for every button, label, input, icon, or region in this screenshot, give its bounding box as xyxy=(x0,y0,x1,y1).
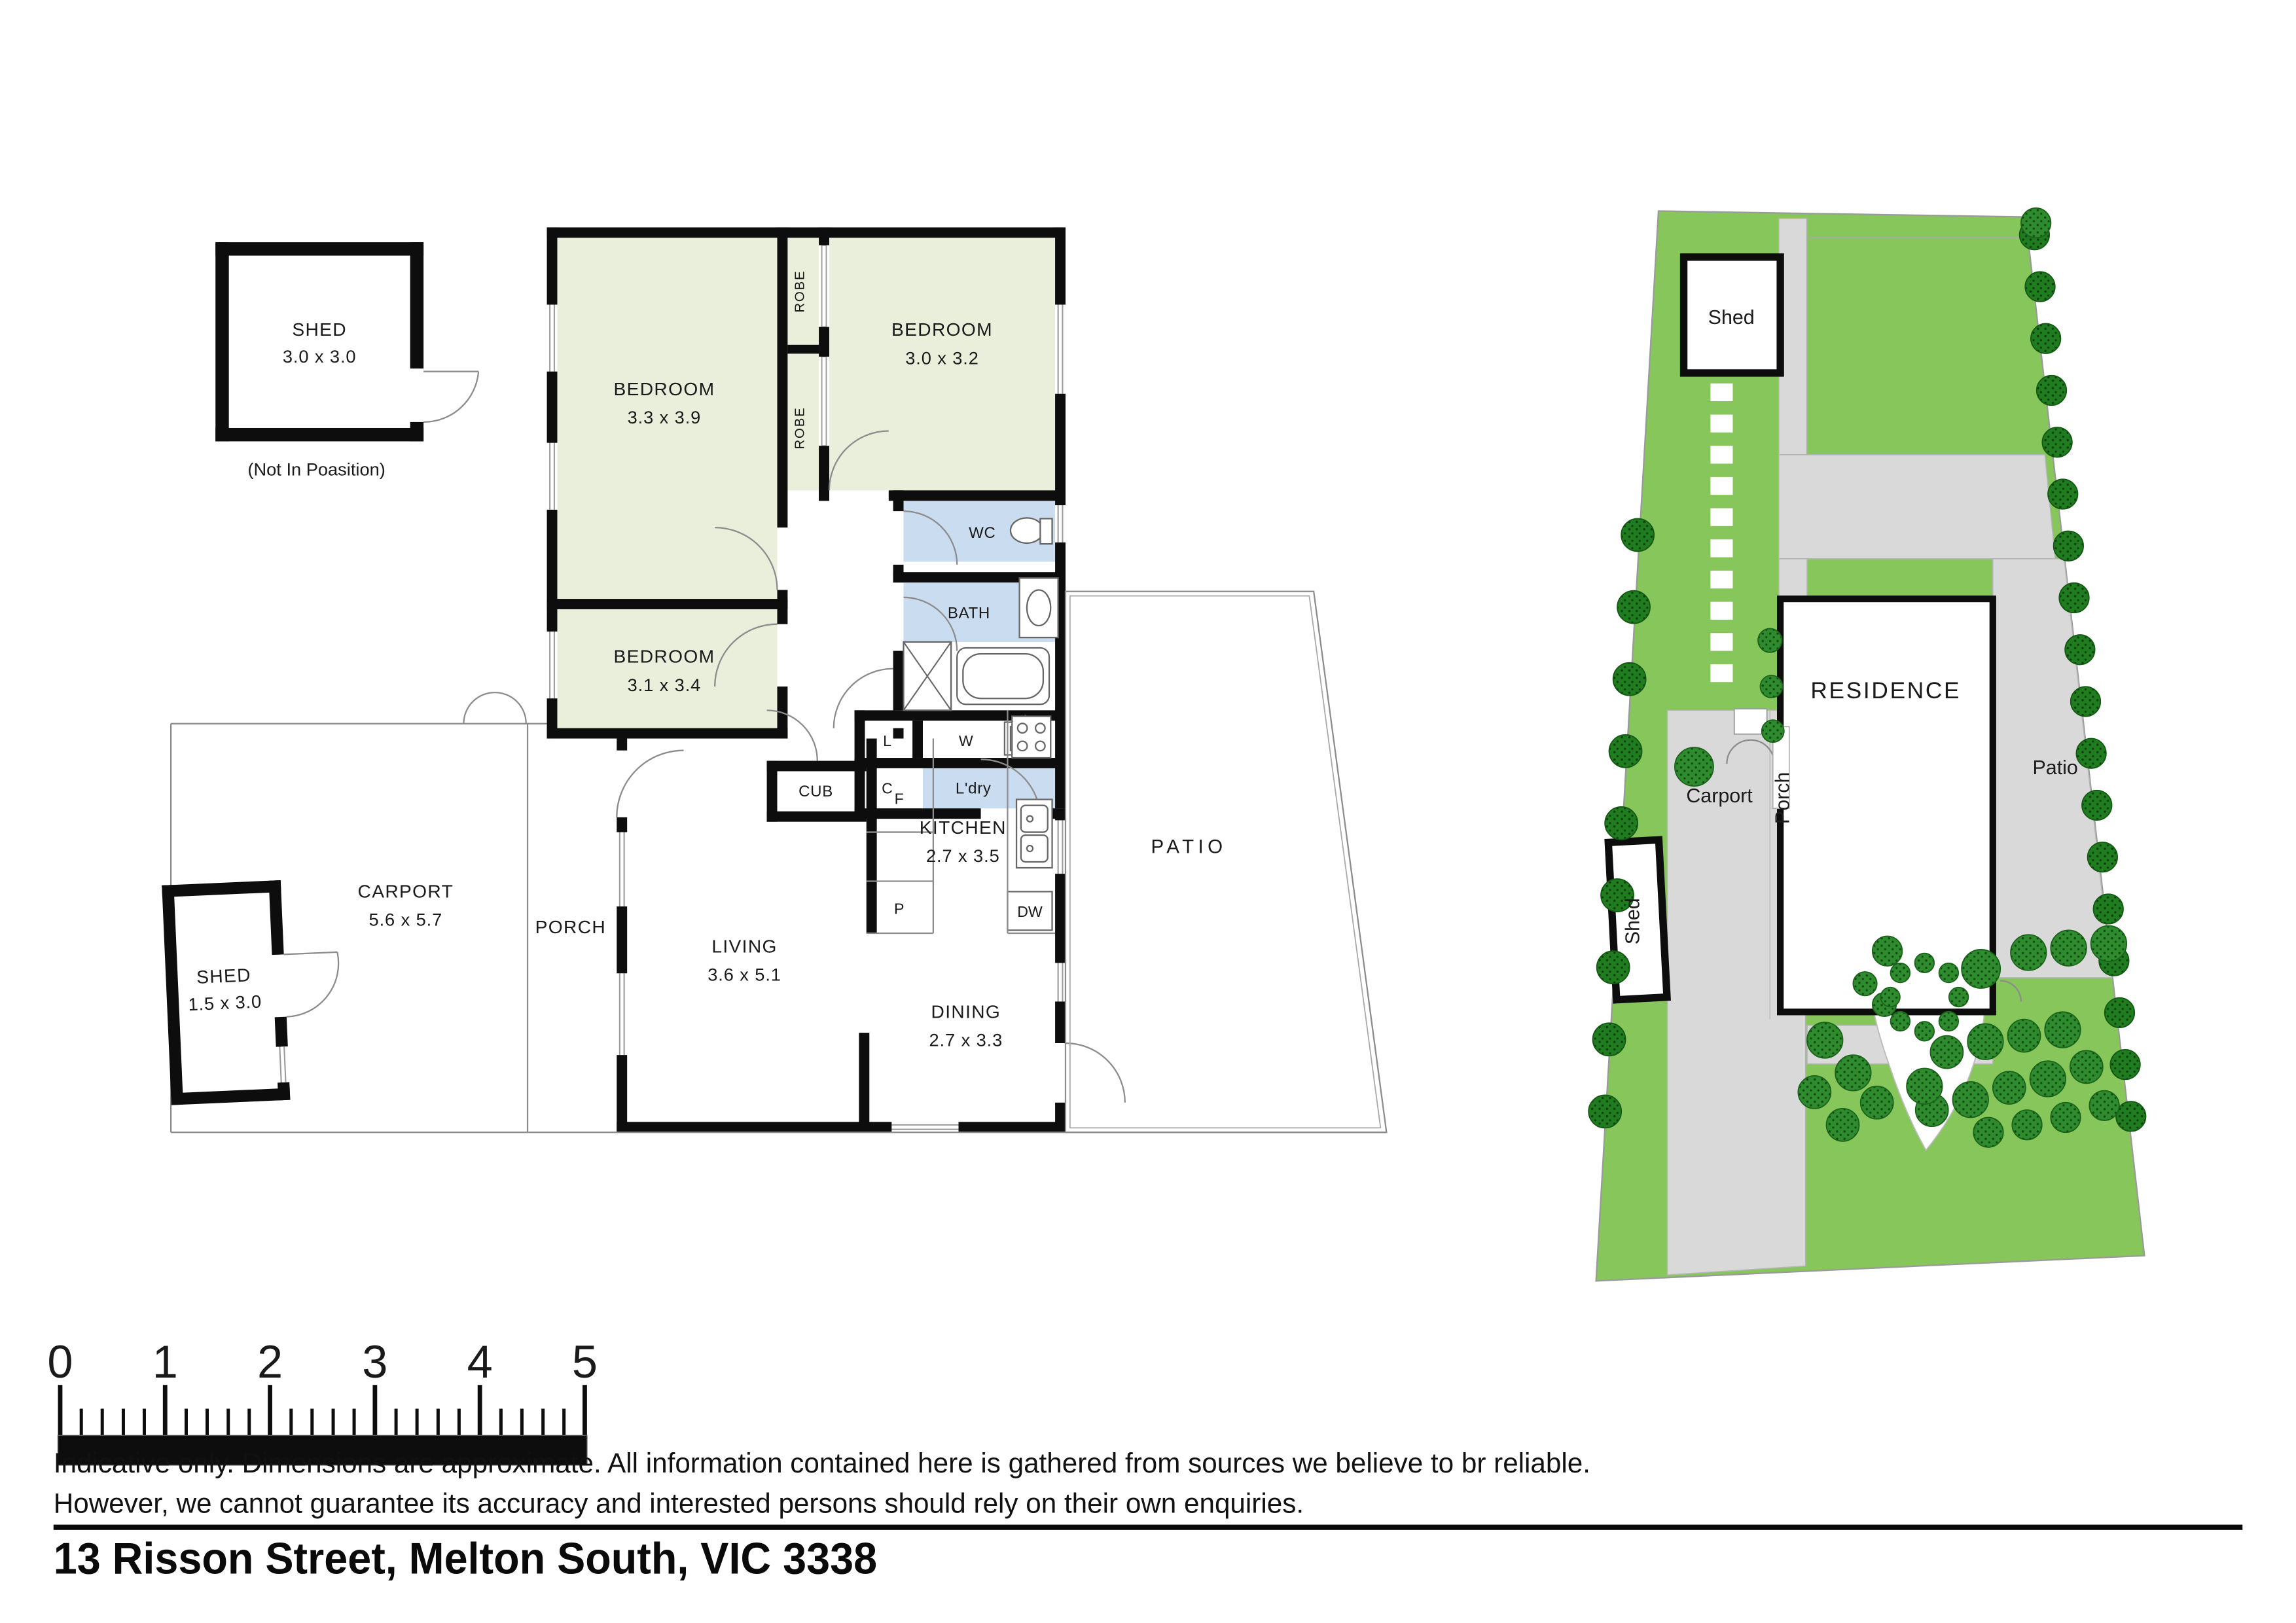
tree-icon xyxy=(2110,1050,2140,1079)
patio-label: PATIO xyxy=(1151,836,1227,857)
dining-dims: 2.7 x 3.3 xyxy=(929,1030,1003,1050)
bedroom1-dims: 3.3 x 3.9 xyxy=(628,407,702,427)
tree-icon xyxy=(2045,1012,2080,1047)
tree-icon xyxy=(1891,1012,1910,1031)
dishwasher-label: DW xyxy=(1017,903,1043,920)
tree-icon xyxy=(2048,479,2077,508)
tree-icon xyxy=(1915,954,1935,973)
scale-minor-tick xyxy=(289,1409,293,1436)
stepping-stone xyxy=(1710,508,1732,526)
tree-icon xyxy=(2051,1103,2080,1132)
tree-icon xyxy=(1807,1022,1842,1058)
outlines xyxy=(171,592,1386,1132)
robe1-label: ROBE xyxy=(793,270,807,313)
washer-label: W xyxy=(959,732,973,749)
scale-num-0: 0 xyxy=(47,1336,73,1387)
site-porch-label: Porch xyxy=(1772,772,1794,824)
tree-icon xyxy=(2091,926,2126,961)
tree-icon xyxy=(1907,1069,1942,1104)
tree-icon xyxy=(1605,807,1638,840)
tree-icon xyxy=(2105,998,2134,1027)
tree-icon xyxy=(1967,1024,2003,1059)
bedroom2-dims: 3.0 x 3.2 xyxy=(905,348,979,368)
floor-plan: SHED 3.0 x 3.0 (Not In Poasition) xyxy=(162,227,1386,1132)
scale-minor-tick xyxy=(185,1409,188,1436)
tree-icon xyxy=(1588,1095,1621,1128)
tree-icon xyxy=(2011,935,2046,970)
scale-minor-tick xyxy=(143,1409,146,1436)
tree-icon xyxy=(1827,1109,1859,1141)
tree-icon xyxy=(1939,963,1959,983)
scale-minor-tick xyxy=(562,1409,565,1436)
cub-label: CUB xyxy=(798,783,833,800)
scale-minor-tick xyxy=(122,1409,125,1436)
scale-minor-tick xyxy=(437,1409,440,1436)
stepping-stone xyxy=(1710,477,1732,495)
tree-icon xyxy=(2088,842,2117,872)
tree-icon xyxy=(1762,720,1784,742)
small-shed: SHED 1.5 x 3.0 xyxy=(162,878,344,1105)
scale-num-1: 1 xyxy=(152,1336,178,1387)
address-title: 13 Risson Street, Melton South, VIC 3338 xyxy=(54,1534,877,1584)
site-patio-label: Patio xyxy=(2033,757,2078,779)
scale-minor-tick xyxy=(226,1409,230,1436)
tree-icon xyxy=(1617,591,1650,624)
disclaimer-line2: However, we cannot guarantee its accurac… xyxy=(54,1488,1304,1518)
scale-minor-tick xyxy=(80,1409,83,1436)
dining-label: DINING xyxy=(931,1001,1001,1022)
site-residence-label: RESIDENCE xyxy=(1810,678,1961,704)
tree-icon xyxy=(1760,675,1782,698)
detached-shed-note: (Not In Poasition) xyxy=(247,459,385,480)
tree-icon xyxy=(1609,735,1642,768)
tree-icon xyxy=(1949,988,1969,1007)
tree-icon xyxy=(1953,1082,1988,1117)
laundry-label: L'dry xyxy=(956,780,992,798)
stepping-stone xyxy=(1710,571,1732,588)
tree-icon xyxy=(1798,1076,1831,1109)
bedroom1-label: BEDROOM xyxy=(613,379,715,399)
tree-icon xyxy=(1973,1118,2003,1147)
tree-icon xyxy=(2012,1110,2041,1139)
tree-icon xyxy=(1962,950,2000,988)
disclaimer-line1: Indicative only. Dimensions are approxim… xyxy=(54,1448,1590,1478)
carport-label: CARPORT xyxy=(358,881,454,901)
wc-label: WC xyxy=(969,524,996,542)
tree-icon xyxy=(1593,1023,1626,1056)
tree-icon xyxy=(2030,1061,2066,1096)
tree-icon xyxy=(1861,1086,1893,1119)
scale-bar: 0 1 2 3 4 5 xyxy=(47,1336,598,1465)
scale-minor-tick xyxy=(541,1409,545,1436)
stepping-stone xyxy=(1710,415,1732,433)
kitchen-dims: 2.7 x 3.5 xyxy=(926,846,1000,866)
scale-num-4: 4 xyxy=(467,1336,493,1387)
stepping-stone xyxy=(1710,383,1732,401)
stepping-stone xyxy=(1710,664,1732,682)
tree-icon xyxy=(1613,663,1646,696)
carport-dims: 5.6 x 5.7 xyxy=(369,910,443,930)
scale-major-tick xyxy=(372,1385,377,1435)
plan-canvas: Shed RESIDENCE Carport Porch Patio Shed … xyxy=(0,0,2296,1623)
stepping-stone xyxy=(1710,602,1732,620)
scale-minor-tick xyxy=(395,1409,398,1436)
tree-icon xyxy=(1621,518,1654,551)
bath-label: BATH xyxy=(948,605,990,622)
tree-icon xyxy=(1915,1022,1935,1041)
living-label: LIVING xyxy=(711,936,777,956)
scale-num-5: 5 xyxy=(572,1336,598,1387)
tree-icon xyxy=(2116,1101,2145,1131)
tree-icon xyxy=(1758,628,1782,652)
scale-major-tick xyxy=(478,1385,482,1435)
stepping-stone xyxy=(1710,539,1732,557)
tree-icon xyxy=(2065,635,2094,664)
porch-label: PORCH xyxy=(535,917,606,937)
bedroom2-label: BEDROOM xyxy=(891,319,993,340)
tree-icon xyxy=(2051,930,2086,965)
tree-icon xyxy=(1993,1071,2026,1104)
scale-num-2: 2 xyxy=(257,1336,283,1387)
pantry-label: P xyxy=(894,900,904,917)
bedroom3-dims: 3.1 x 3.4 xyxy=(628,675,702,695)
footer: Indicative only. Dimensions are approxim… xyxy=(54,1448,2243,1584)
scale-minor-tick xyxy=(353,1409,356,1436)
tree-icon xyxy=(1675,747,1713,786)
scale-num-3: 3 xyxy=(362,1336,387,1387)
tree-icon xyxy=(2089,1091,2119,1120)
tree-icon xyxy=(2071,687,2100,716)
floorplan-page: Shed RESIDENCE Carport Porch Patio Shed … xyxy=(0,0,2296,1623)
stepping-stone xyxy=(1710,446,1732,463)
tree-icon xyxy=(2025,272,2054,301)
detached-shed-dims: 3.0 x 3.0 xyxy=(283,346,357,366)
tree-icon xyxy=(1597,951,1630,984)
stepping-stone xyxy=(1710,633,1732,651)
scale-minor-tick xyxy=(416,1409,419,1436)
tree-icon xyxy=(2094,894,2123,923)
footer-divider xyxy=(54,1525,2243,1530)
tree-icon xyxy=(2037,376,2066,405)
linen-label: L xyxy=(883,732,891,749)
tree-icon xyxy=(2059,583,2089,613)
tree-icon xyxy=(2070,1050,2103,1083)
tree-icon xyxy=(2008,1020,2041,1052)
tree-icon xyxy=(1891,963,1910,983)
tree-icon xyxy=(2082,791,2111,820)
tree-icon xyxy=(2021,208,2051,238)
detached-shed: SHED 3.0 x 3.0 (Not In Poasition) xyxy=(215,242,478,479)
tree-icon xyxy=(1880,988,1900,1007)
scale-minor-tick xyxy=(332,1409,335,1436)
site-carport-label: Carport xyxy=(1686,785,1753,807)
tree-icon xyxy=(2042,427,2072,457)
robe2-label: ROBE xyxy=(793,406,807,449)
scale-major-tick xyxy=(58,1385,63,1435)
scale-minor-tick xyxy=(499,1409,503,1436)
small-shed-label: SHED xyxy=(196,965,251,988)
tree-icon xyxy=(1930,1036,1963,1069)
tree-icon xyxy=(2031,324,2060,353)
tree-icon xyxy=(1939,1012,1959,1031)
scale-ticks xyxy=(58,1385,587,1435)
scale-minor-tick xyxy=(520,1409,524,1436)
tree-icon xyxy=(1853,972,1876,995)
scale-minor-tick xyxy=(206,1409,209,1436)
scale-major-tick xyxy=(268,1385,272,1435)
scale-minor-tick xyxy=(457,1409,461,1436)
tree-icon xyxy=(1835,1055,1871,1090)
site-shed-back-label: Shed xyxy=(1708,306,1755,329)
scale-major-tick xyxy=(583,1385,587,1435)
scale-minor-tick xyxy=(310,1409,314,1436)
tree-icon xyxy=(1873,936,1902,965)
scale-minor-tick xyxy=(247,1409,251,1436)
site-plan: Shed RESIDENCE Carport Porch Patio Shed xyxy=(1588,208,2145,1281)
tree-icon xyxy=(2054,531,2083,561)
small-shed-dims: 1.5 x 3.0 xyxy=(188,991,262,1014)
tree-icon xyxy=(2076,739,2106,768)
detached-shed-label: SHED xyxy=(292,319,347,340)
bedroom3-label: BEDROOM xyxy=(613,647,715,667)
fridge-label: F xyxy=(895,790,904,807)
living-dims: 3.6 x 5.1 xyxy=(708,965,781,985)
kitchen-label: KITCHEN xyxy=(920,817,1007,838)
scale-minor-tick xyxy=(101,1409,104,1436)
site-shed-side-label: Shed xyxy=(1621,898,1643,944)
cupboard-label: C xyxy=(882,780,893,797)
scale-major-tick xyxy=(163,1385,168,1435)
